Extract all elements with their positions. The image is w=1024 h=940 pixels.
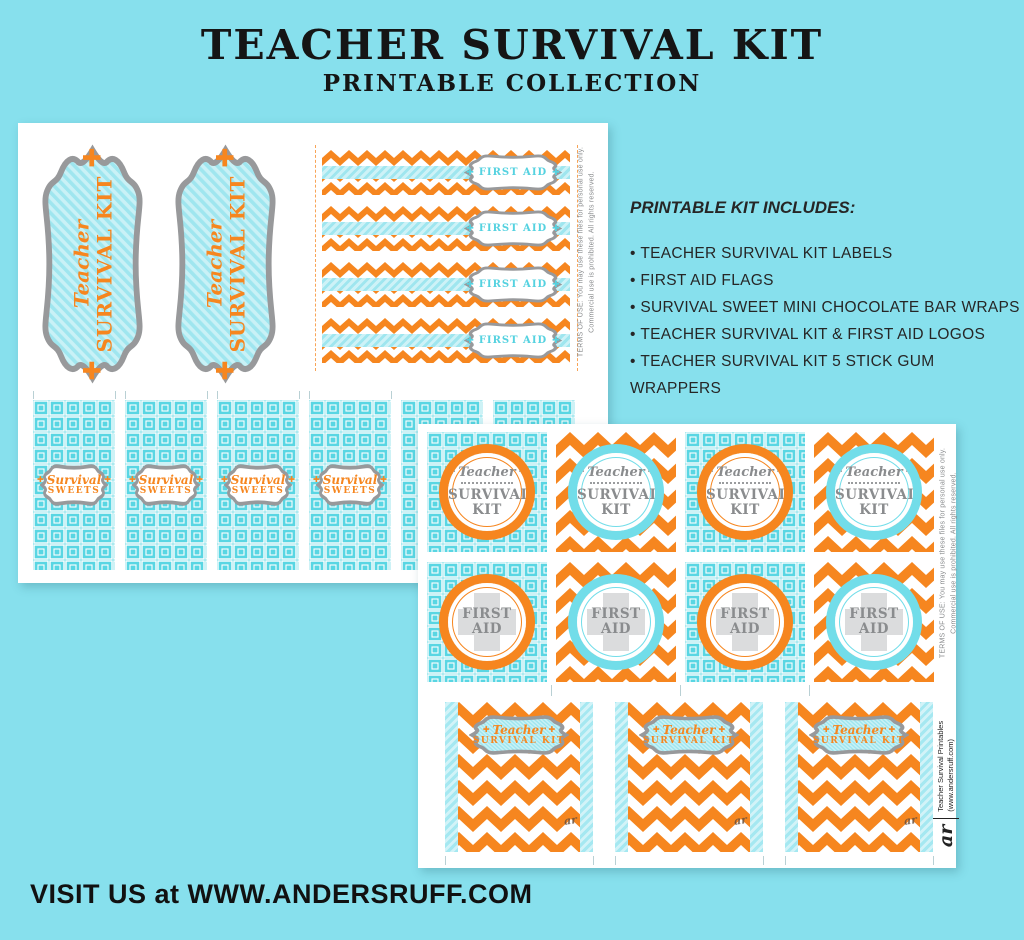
cross-icon: ✚: [81, 360, 105, 380]
survival-script: Survival: [323, 474, 378, 486]
cross-icon: ✚: [906, 468, 913, 476]
crop-mark: [207, 391, 208, 399]
sweets-text: SWEETS: [232, 487, 285, 496]
sweets-label-text: ✚ Survival ✚ SWEETS: [224, 464, 292, 506]
cross-icon: ✚: [707, 468, 714, 476]
cross-icon: ✚: [823, 726, 830, 734]
logo-square: FIRST AID: [814, 562, 934, 682]
teacher-script: Teacher: [716, 466, 773, 479]
first-aid-strip: ✚ FIRST AID ✚: [322, 150, 570, 195]
credit-line2: (www.andersruff.com): [946, 721, 956, 812]
includes-list: TEACHER SURVIVAL KIT LABELS FIRST AID FL…: [630, 240, 1022, 402]
first-aid-flag: ✚ FIRST AID ✚: [464, 154, 562, 191]
bracket-label-text: ✚ Teacher SURVIVAL KIT ✚: [204, 148, 247, 380]
includes-heading: PRINTABLE KIT INCLUDES:: [630, 198, 1022, 218]
maker-mark: ar: [903, 814, 917, 827]
teacher-script: Teacher: [833, 724, 886, 736]
survival-kit-text: SURVIVAL KIT: [473, 737, 565, 746]
first-aid-text: FIRST AID: [577, 607, 655, 637]
survival-script: Survival: [231, 474, 286, 486]
cross-icon: ✚: [836, 468, 843, 476]
crop-mark: [785, 856, 786, 865]
terms-text: TERMS OF USE: You may use these files fo…: [570, 138, 604, 366]
teacher-script: Teacher: [845, 466, 902, 479]
flag-text: ✚ FIRST AID ✚: [464, 210, 562, 247]
cross-icon: ✚: [214, 360, 238, 380]
maker-mark: ar: [563, 814, 577, 827]
logo-circle: ✚Teacher✚ SURVIVAL KIT: [826, 444, 922, 540]
crop-mark: [551, 685, 552, 696]
teacher-script: Teacher: [587, 466, 644, 479]
logo-square: ✚Teacher✚ SURVIVAL KIT: [814, 432, 934, 552]
crop-mark: [763, 856, 764, 865]
first-aid-strip: ✚ FIRST AID ✚: [322, 318, 570, 363]
first-aid-flag: ✚ FIRST AID ✚: [464, 266, 562, 303]
crop-mark: [309, 391, 310, 399]
sweets-label-text: ✚ Survival ✚ SWEETS: [132, 464, 200, 506]
cross-icon: ✚: [81, 147, 105, 167]
visit-text: VISIT US at WWW.ANDERSRUFF.COM: [30, 878, 533, 910]
gum-side-strip: [445, 702, 458, 852]
gum-label-text: ✚ Teacher ✚ SURVIVAL KIT: [809, 715, 909, 755]
sweets-label-text: ✚ Survival ✚ SWEETS: [316, 464, 384, 506]
survival-kit-text: SURVIVAL KIT: [448, 488, 526, 518]
teacher-script: Teacher: [71, 220, 91, 308]
cross-icon: ✚: [483, 726, 490, 734]
sweets-text: SWEETS: [324, 487, 377, 496]
flag-text: ✚ FIRST AID ✚: [464, 154, 562, 191]
includes-item: TEACHER SURVIVAL KIT LABELS: [630, 240, 1022, 267]
gum-wrapper: ✚ Teacher ✚ SURVIVAL KIT ar: [615, 702, 763, 852]
logo-square: FIRST AID: [556, 562, 676, 682]
cross-icon: ✚: [313, 476, 320, 484]
cross-icon: ✚: [519, 468, 526, 476]
gum-side-strip: [785, 702, 798, 852]
terms-line2: Commercial use is prohibited. All rights…: [587, 134, 598, 370]
gum-wrapper: ✚ Teacher ✚ SURVIVAL KIT ar: [445, 702, 593, 852]
survival-kit-text: SURVIVAL KIT: [227, 176, 247, 353]
cross-icon: ✚: [777, 468, 784, 476]
sweets-text: SWEETS: [140, 487, 193, 496]
survival-script: Survival: [47, 474, 102, 486]
sweets-label: ✚ Survival ✚ SWEETS: [224, 464, 292, 506]
gum-label-text: ✚ Teacher ✚ SURVIVAL KIT: [469, 715, 569, 755]
gum-side-strip: [580, 702, 593, 852]
teacher-script: Teacher: [663, 724, 716, 736]
crop-mark: [615, 856, 616, 865]
credit-text: Teacher Survival Printables (www.andersr…: [936, 721, 956, 812]
gum-label: ✚ Teacher ✚ SURVIVAL KIT: [809, 715, 909, 755]
teacher-script: Teacher: [204, 220, 224, 308]
logo-circle: FIRST AID: [439, 574, 535, 670]
survival-kit-text: SURVIVAL KIT: [643, 737, 735, 746]
first-aid-strip: ✚ FIRST AID ✚: [322, 262, 570, 307]
gum-wrapper: ✚ Teacher ✚ SURVIVAL KIT ar: [785, 702, 933, 852]
cross-icon: ✚: [466, 224, 474, 233]
survival-kit-text: SURVIVAL KIT: [706, 488, 784, 518]
first-aid-strip: ✚ FIRST AID ✚: [322, 206, 570, 251]
logo-circle: FIRST AID: [826, 574, 922, 670]
sweets-label: ✚ Survival ✚ SWEETS: [316, 464, 384, 506]
divider-dots: [848, 482, 900, 484]
includes-panel: PRINTABLE KIT INCLUDES: TEACHER SURVIVAL…: [630, 198, 1022, 402]
cross-icon: ✚: [552, 168, 560, 177]
first-aid-text: FIRST AID: [479, 168, 547, 178]
logo-square: ✚Teacher✚ SURVIVAL KIT: [556, 432, 676, 552]
maker-mark: ar: [733, 814, 747, 827]
header: TEACHER SURVIVAL KIT PRINTABLE COLLECTIO…: [0, 24, 1024, 95]
gum-label: ✚ Teacher ✚ SURVIVAL KIT: [639, 715, 739, 755]
gum-side-strip: [750, 702, 763, 852]
cross-icon: ✚: [196, 476, 203, 484]
crop-mark: [680, 685, 681, 696]
terms-line2: Commercial use is prohibited. All rights…: [949, 435, 960, 671]
sweets-label: ✚ Survival ✚ SWEETS: [40, 464, 108, 506]
crop-mark: [217, 391, 218, 399]
logo-square: FIRST AID: [427, 562, 547, 682]
includes-item: FIRST AID FLAGS: [630, 267, 1022, 294]
terms-line1: TERMS OF USE: You may use these files fo…: [577, 134, 588, 370]
survival-script: Survival: [139, 474, 194, 486]
cross-icon: ✚: [653, 726, 660, 734]
logo-square: ✚Teacher✚ SURVIVAL KIT: [427, 432, 547, 552]
crop-mark: [125, 391, 126, 399]
survival-kit-text: SURVIVAL KIT: [94, 176, 114, 353]
first-aid-flag: ✚ FIRST AID ✚: [464, 210, 562, 247]
crop-mark: [299, 391, 300, 399]
logo-circle: FIRST AID: [568, 574, 664, 670]
candy-wrapper: ✚ Survival ✚ SWEETS: [33, 400, 115, 570]
logo-square: ✚Teacher✚ SURVIVAL KIT: [685, 432, 805, 552]
cross-icon: ✚: [466, 280, 474, 289]
crop-mark: [115, 391, 116, 399]
includes-item: SURVIVAL SWEET MINI CHOCOLATE BAR WRAPS: [630, 294, 1022, 321]
candy-wrapper: ✚ Survival ✚ SWEETS: [217, 400, 299, 570]
crop-mark: [445, 856, 446, 865]
candy-wrapper: ✚ Survival ✚ SWEETS: [309, 400, 391, 570]
cross-icon: ✚: [888, 726, 895, 734]
survival-kit-text: SURVIVAL KIT: [577, 488, 655, 518]
includes-item: TEACHER SURVIVAL KIT & FIRST AID LOGOS: [630, 321, 1022, 348]
gum-label-text: ✚ Teacher ✚ SURVIVAL KIT: [639, 715, 739, 755]
cross-icon: ✚: [648, 468, 655, 476]
logo-square: FIRST AID: [685, 562, 805, 682]
flag-text: ✚ FIRST AID ✚: [464, 322, 562, 359]
gum-side-strip: [615, 702, 628, 852]
flag-text: ✚ FIRST AID ✚: [464, 266, 562, 303]
cross-icon: ✚: [380, 476, 387, 484]
gum-label: ✚ Teacher ✚ SURVIVAL KIT: [469, 715, 569, 755]
cross-icon: ✚: [718, 726, 725, 734]
divider-dots: [590, 482, 642, 484]
subtitle: PRINTABLE COLLECTION: [0, 72, 1024, 95]
first-aid-text: FIRST AID: [706, 607, 784, 637]
ar-logo: ar: [937, 825, 956, 847]
first-aid-text: FIRST AID: [835, 607, 913, 637]
cross-icon: ✚: [466, 336, 474, 345]
credit-line1: Teacher Survival Printables: [936, 721, 946, 812]
cross-icon: ✚: [548, 726, 555, 734]
crop-mark: [593, 856, 594, 865]
first-aid-text: FIRST AID: [448, 607, 526, 637]
survival-kit-bracket-label: ✚ Teacher SURVIVAL KIT ✚: [40, 143, 145, 385]
printable-sheet-right: ✚Teacher✚ SURVIVAL KIT ✚Teacher✚ SURVIVA…: [418, 424, 956, 868]
candy-wrapper: ✚ Survival ✚ SWEETS: [125, 400, 207, 570]
cross-icon: ✚: [288, 476, 295, 484]
teacher-script: Teacher: [493, 724, 546, 736]
sweets-label: ✚ Survival ✚ SWEETS: [132, 464, 200, 506]
survival-kit-text: SURVIVAL KIT: [835, 488, 913, 518]
first-aid-flag: ✚ FIRST AID ✚: [464, 322, 562, 359]
credit-divider: [933, 818, 959, 819]
bracket-label-text: ✚ Teacher SURVIVAL KIT ✚: [71, 148, 114, 380]
terms-text: TERMS OF USE: You may use these files fo…: [934, 434, 964, 672]
logo-circle: FIRST AID: [697, 574, 793, 670]
crop-mark: [33, 391, 34, 399]
logo-circle: ✚Teacher✚ SURVIVAL KIT: [697, 444, 793, 540]
poster: TEACHER SURVIVAL KIT PRINTABLE COLLECTIO…: [0, 0, 1024, 940]
terms-line1: TERMS OF USE: You may use these files fo…: [939, 435, 950, 671]
crop-mark: [391, 391, 392, 399]
cross-icon: ✚: [466, 168, 474, 177]
cross-icon: ✚: [104, 476, 111, 484]
sweets-label-text: ✚ Survival ✚ SWEETS: [40, 464, 108, 506]
logo-circle: ✚Teacher✚ SURVIVAL KIT: [568, 444, 664, 540]
crop-mark: [809, 685, 810, 696]
first-aid-text: FIRST AID: [479, 224, 547, 234]
cross-icon: ✚: [552, 224, 560, 233]
logo-circle: ✚Teacher✚ SURVIVAL KIT: [439, 444, 535, 540]
divider-dots: [461, 482, 513, 484]
cross-icon: ✚: [552, 336, 560, 345]
first-aid-text: FIRST AID: [479, 280, 547, 290]
main-title: TEACHER SURVIVAL KIT: [0, 24, 1024, 67]
cross-icon: ✚: [37, 476, 44, 484]
sweets-text: SWEETS: [48, 487, 101, 496]
cross-icon: ✚: [552, 280, 560, 289]
survival-kit-bracket-label: ✚ Teacher SURVIVAL KIT ✚: [173, 143, 278, 385]
credit-block: ar Teacher Survival Printables (www.ande…: [926, 719, 966, 849]
includes-item: TEACHER SURVIVAL KIT 5 STICK GUM WRAPPER…: [630, 348, 1022, 402]
survival-kit-text: SURVIVAL KIT: [813, 737, 905, 746]
divider-dots: [719, 482, 771, 484]
cross-icon: ✚: [578, 468, 585, 476]
cross-icon: ✚: [214, 147, 238, 167]
teacher-script: Teacher: [458, 466, 515, 479]
cross-icon: ✚: [129, 476, 136, 484]
first-aid-text: FIRST AID: [479, 336, 547, 346]
crop-mark: [315, 145, 316, 371]
cross-icon: ✚: [449, 468, 456, 476]
cross-icon: ✚: [221, 476, 228, 484]
